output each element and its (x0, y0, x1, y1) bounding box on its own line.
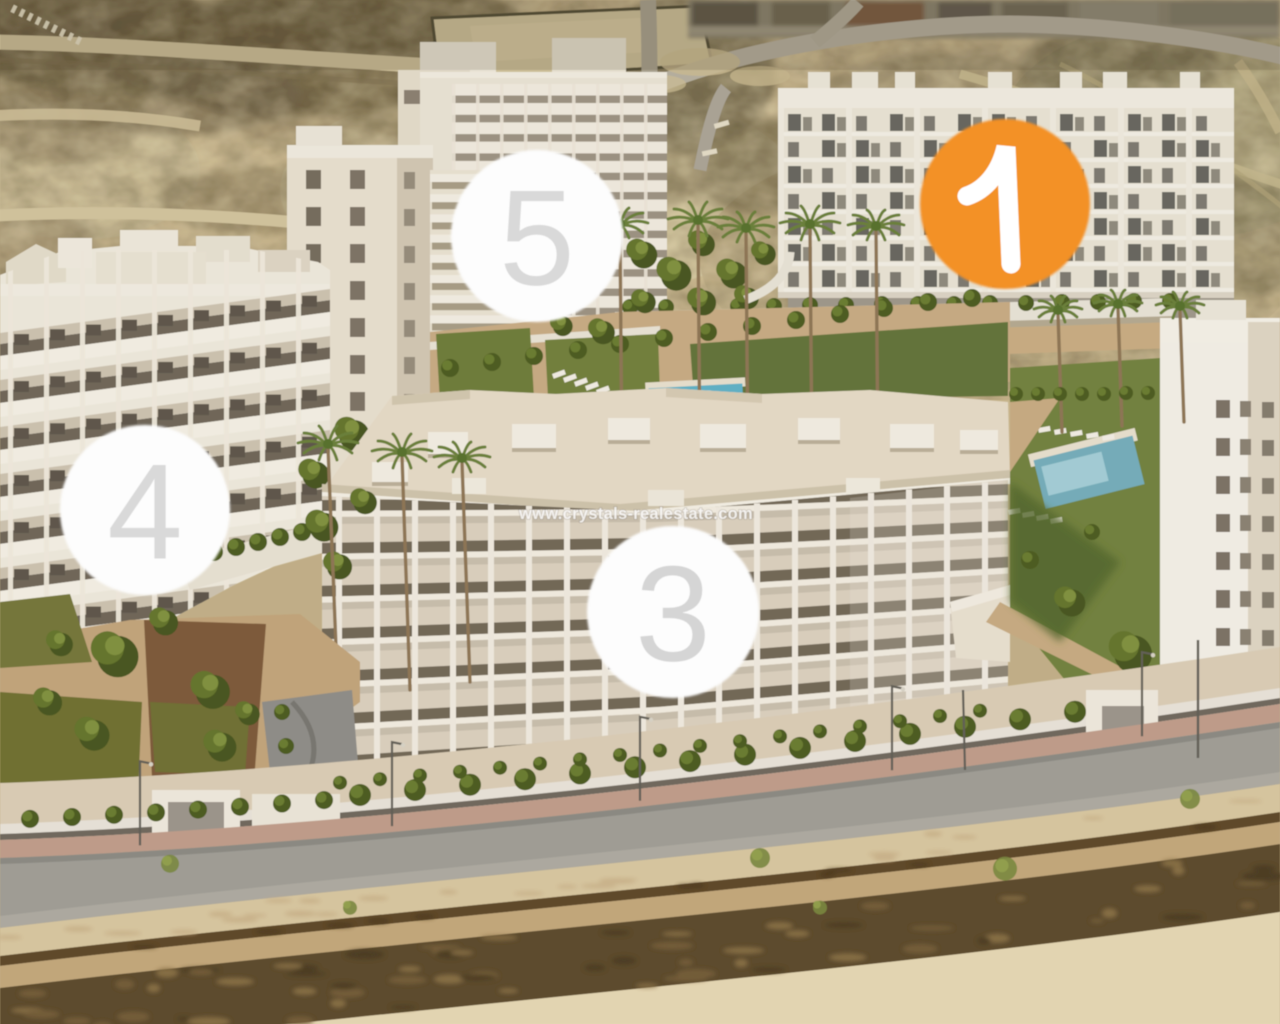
svg-text:5: 5 (499, 162, 575, 314)
svg-text:3: 3 (635, 538, 711, 690)
svg-text:4: 4 (107, 436, 183, 588)
